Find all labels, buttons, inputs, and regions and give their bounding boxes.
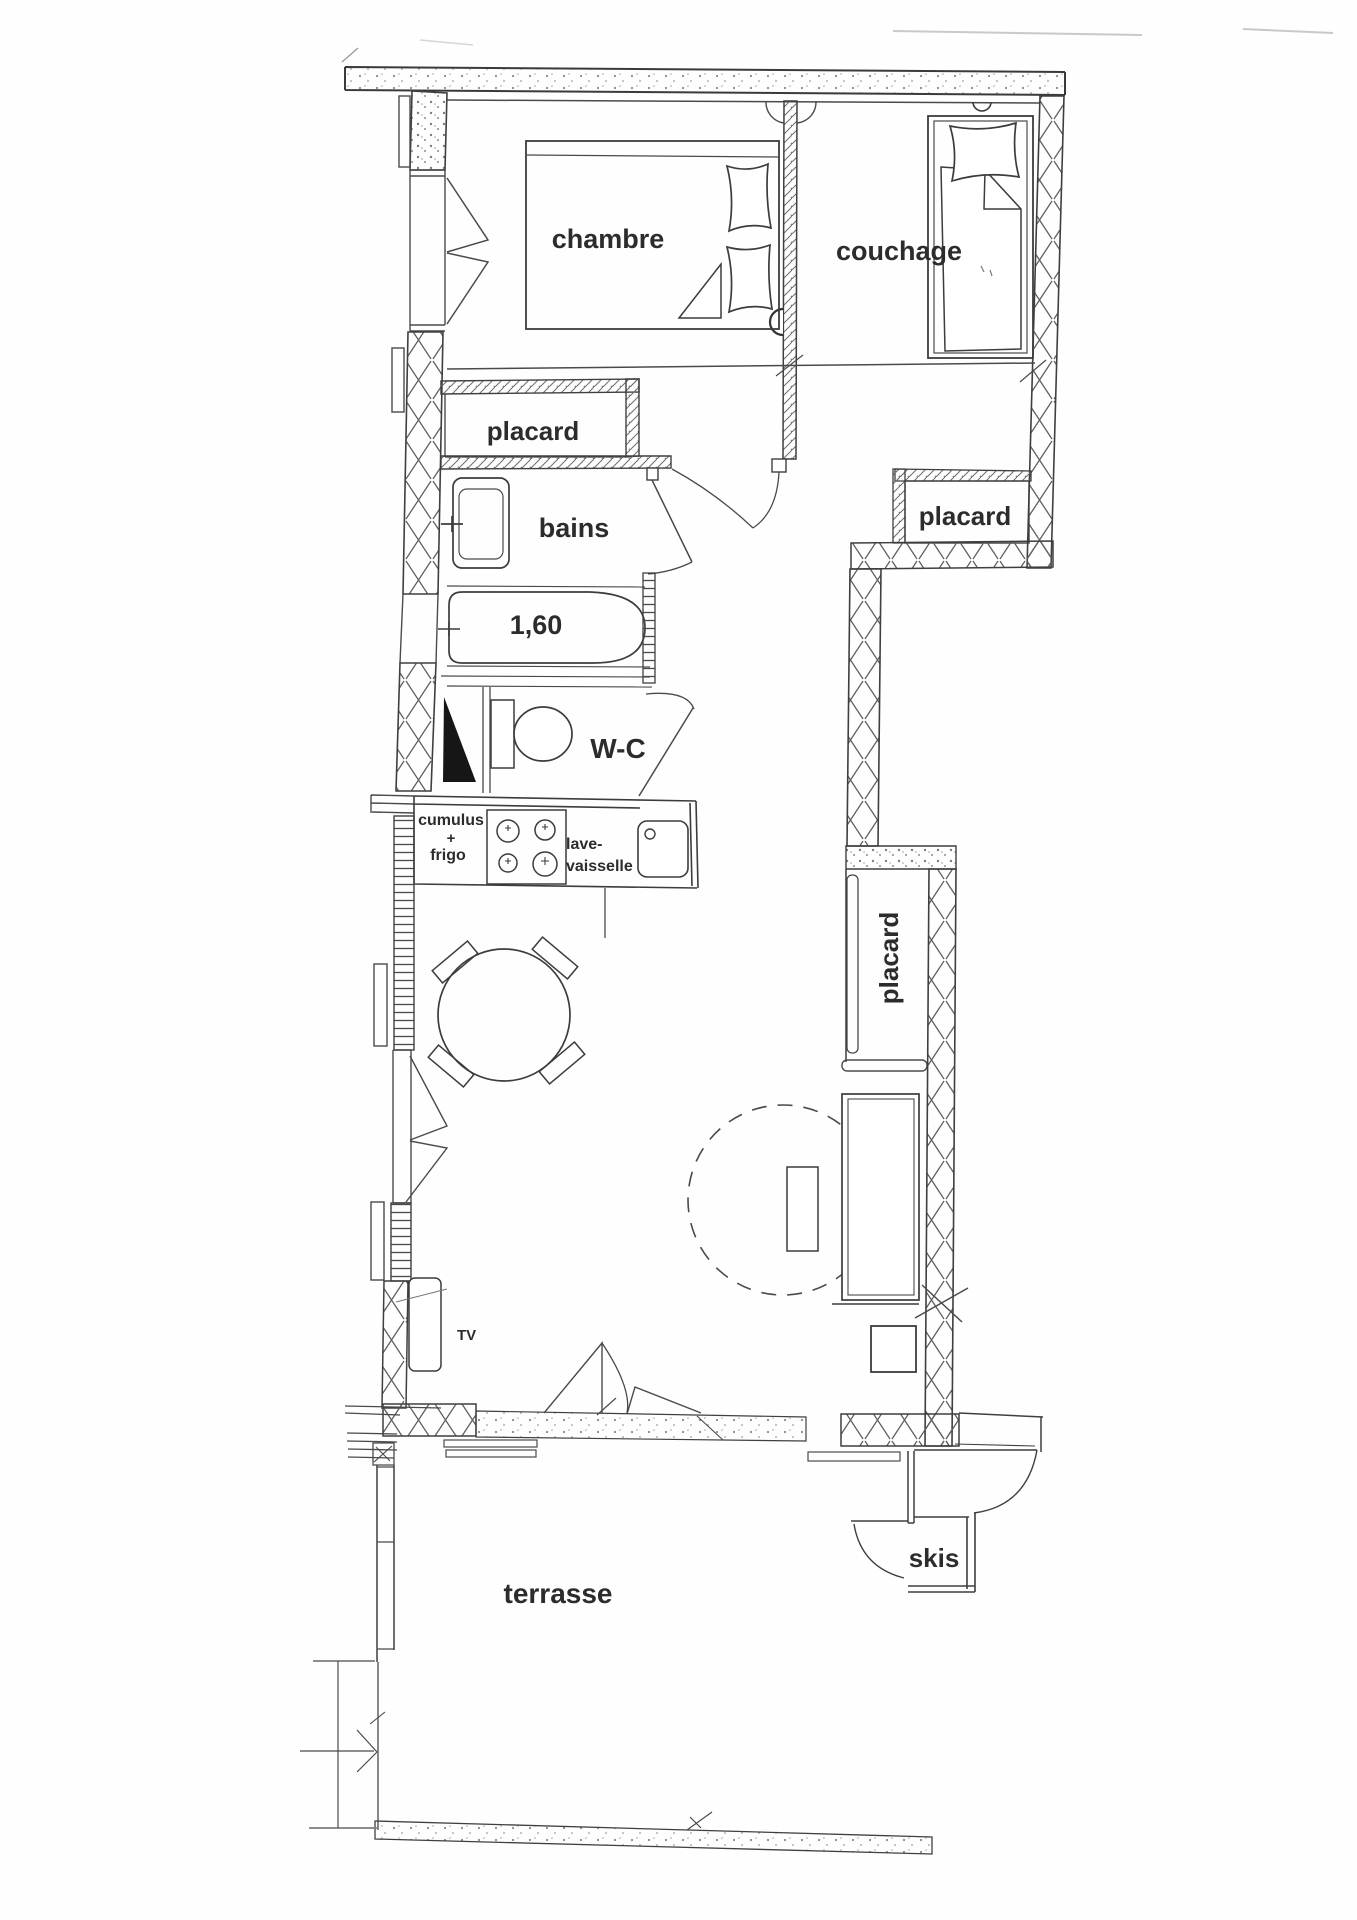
svg-text:vaisselle: vaisselle — [566, 858, 633, 875]
svg-text:cumulus: cumulus — [418, 812, 484, 829]
svg-text:terrasse: terrasse — [504, 1578, 613, 1609]
svg-text:lave-: lave- — [566, 836, 602, 853]
svg-text:TV: TV — [457, 1327, 476, 1344]
svg-text:W-C: W-C — [590, 733, 645, 764]
svg-text:couchage: couchage — [836, 236, 962, 266]
svg-text:bains: bains — [539, 513, 610, 543]
svg-text:placard: placard — [919, 501, 1012, 531]
svg-text:skis: skis — [909, 1543, 960, 1573]
svg-text:placard: placard — [487, 416, 580, 446]
svg-text:+: + — [447, 830, 456, 847]
svg-text:1,60: 1,60 — [510, 610, 563, 640]
svg-text:placard: placard — [874, 912, 904, 1005]
svg-text:chambre: chambre — [552, 224, 665, 254]
svg-text:frigo: frigo — [430, 847, 466, 864]
